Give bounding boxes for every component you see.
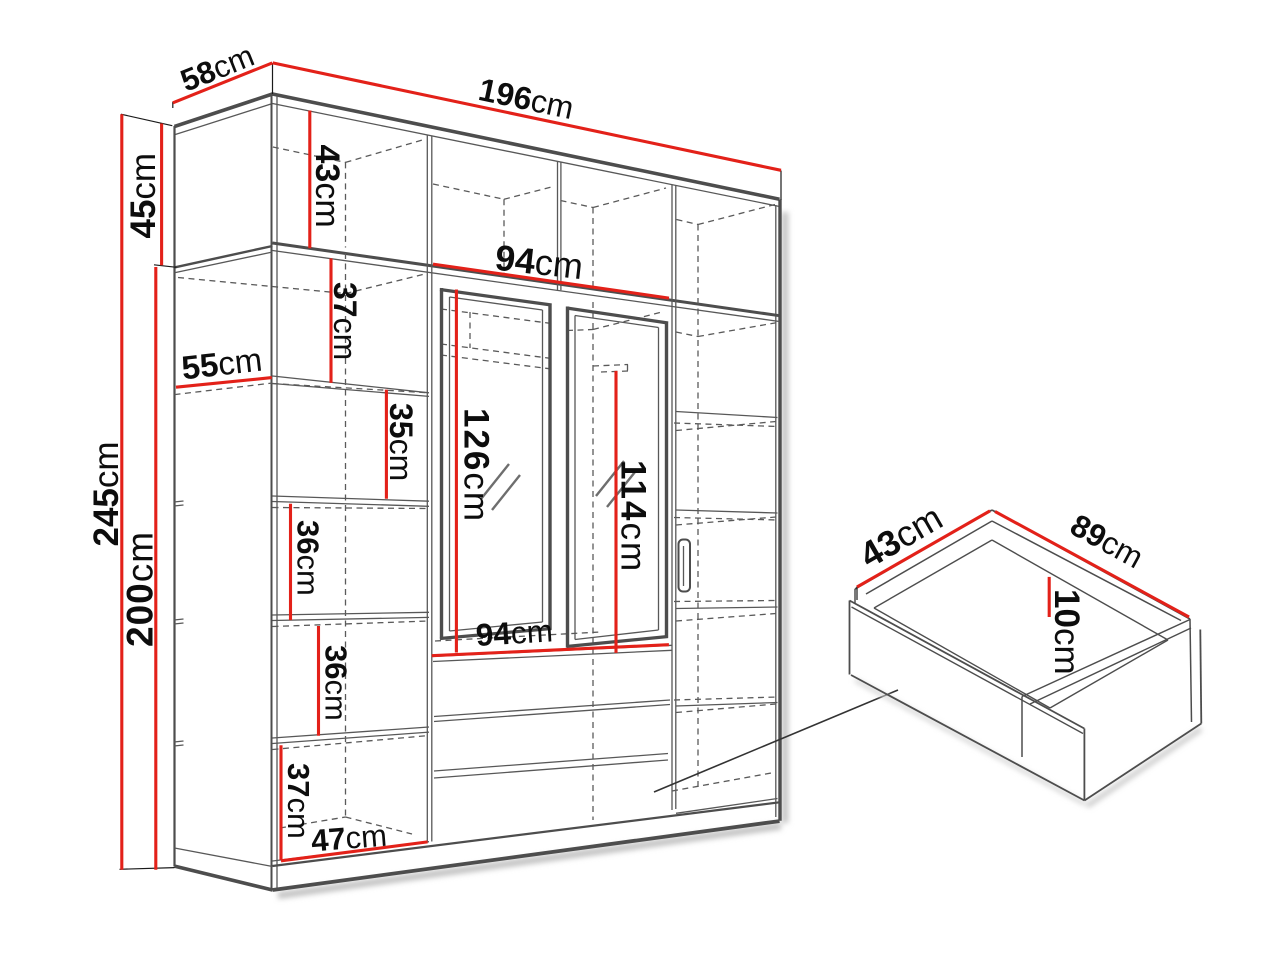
svg-text:47cm: 47cm [310, 818, 388, 859]
svg-text:45cm: 45cm [124, 153, 163, 239]
svg-text:37cm: 37cm [327, 282, 363, 360]
svg-text:114cm: 114cm [614, 460, 653, 573]
svg-text:245cm: 245cm [87, 441, 126, 546]
svg-text:36cm: 36cm [291, 520, 326, 596]
svg-text:10cm: 10cm [1047, 589, 1086, 675]
svg-text:43cm: 43cm [308, 145, 346, 228]
svg-text:126cm: 126cm [457, 408, 496, 523]
svg-text:200cm: 200cm [120, 531, 161, 647]
svg-text:94cm: 94cm [475, 612, 554, 653]
svg-text:35cm: 35cm [383, 403, 419, 481]
svg-text:36cm: 36cm [319, 645, 354, 721]
